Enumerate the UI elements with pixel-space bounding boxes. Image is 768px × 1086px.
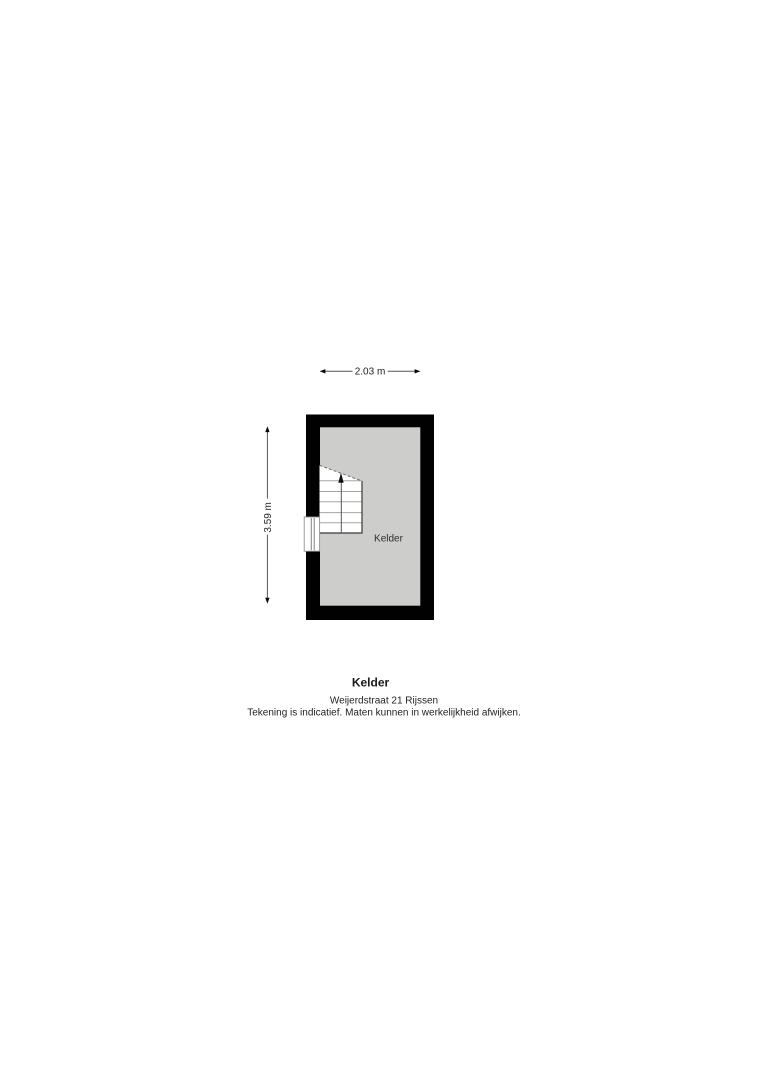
svg-text:Tekening is indicatief. Maten: Tekening is indicatief. Maten kunnen in … [247,708,520,719]
svg-text:Weijerdstraat 21 Rijssen: Weijerdstraat 21 Rijssen [330,696,438,707]
svg-text:2.03 m: 2.03 m [355,367,386,378]
svg-text:Kelder: Kelder [374,534,404,545]
svg-text:3.59 m: 3.59 m [263,502,274,533]
svg-text:Kelder: Kelder [352,676,390,690]
